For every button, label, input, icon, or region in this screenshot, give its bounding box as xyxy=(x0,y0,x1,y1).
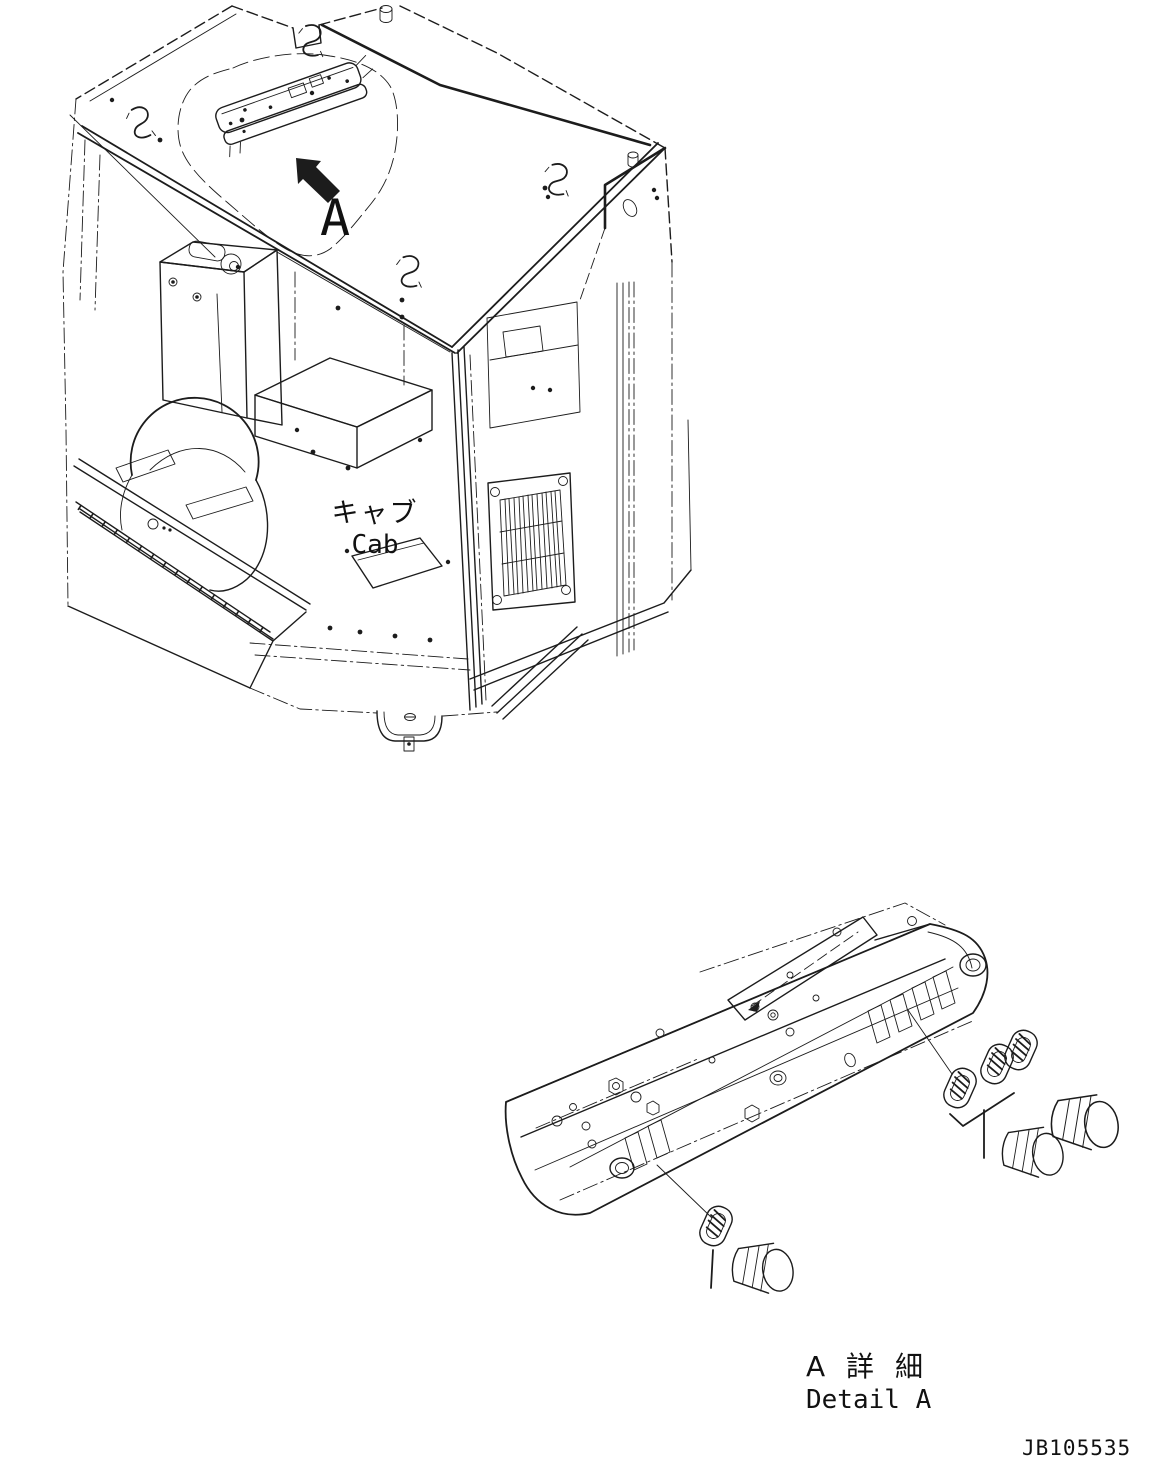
left-wall-hidden-lines xyxy=(80,140,100,310)
panel-boss xyxy=(610,954,986,1178)
switch-rubber-boot xyxy=(977,1040,1017,1087)
parts-diagram-sheet: A xyxy=(0,0,1163,1481)
cab-outline xyxy=(63,6,691,719)
cab-label-jp: キャブ xyxy=(332,498,419,529)
callout-letter: A xyxy=(320,189,350,247)
vent-grille xyxy=(186,487,253,519)
boot-stem-line xyxy=(711,1250,713,1288)
panel-phantom-outline xyxy=(700,903,945,972)
corner-hole xyxy=(620,197,639,219)
cab-assembly-drawing: A xyxy=(63,6,691,752)
console-hardware xyxy=(552,995,819,1148)
ceiling-switch-panel xyxy=(213,55,384,157)
grab-hook-icon xyxy=(394,255,424,288)
console-lid xyxy=(728,917,877,1020)
grab-hook-icon xyxy=(296,23,327,57)
rear-wall xyxy=(487,302,580,428)
rocker-switch-body xyxy=(999,1122,1072,1181)
vent-grille xyxy=(116,450,175,482)
front-cover xyxy=(74,459,310,688)
rear-grille xyxy=(488,473,575,610)
switch-cutouts xyxy=(625,971,955,1170)
cab-roof xyxy=(70,6,665,386)
detail-title-jp: A 詳 細 xyxy=(806,1350,929,1383)
drawing-number: JB105535 xyxy=(1022,1436,1131,1460)
grab-hook-icon xyxy=(126,106,156,139)
front-pillar xyxy=(452,347,486,710)
grab-hook-icon xyxy=(542,162,574,197)
boot-fork-line xyxy=(950,1093,1014,1158)
mounting-bracket xyxy=(377,711,442,751)
switch-rubber-boot xyxy=(1001,1026,1041,1073)
cab-label-en: Cab xyxy=(352,530,399,560)
detail-a-drawing: A 詳 細 Detail A xyxy=(506,903,1128,1415)
leader-line xyxy=(657,1165,712,1218)
switch-console xyxy=(506,917,988,1215)
detail-title-en: Detail A xyxy=(806,1385,932,1415)
right-frame-rails xyxy=(617,282,634,656)
diagram-canvas: A xyxy=(0,0,1163,1481)
rocker-switch-body xyxy=(729,1238,802,1297)
blower-duct xyxy=(116,398,268,591)
leader-line xyxy=(908,1010,952,1074)
switch-rubber-boot xyxy=(696,1202,736,1249)
switch-rubber-boot xyxy=(940,1064,980,1111)
tank-box xyxy=(160,240,450,425)
